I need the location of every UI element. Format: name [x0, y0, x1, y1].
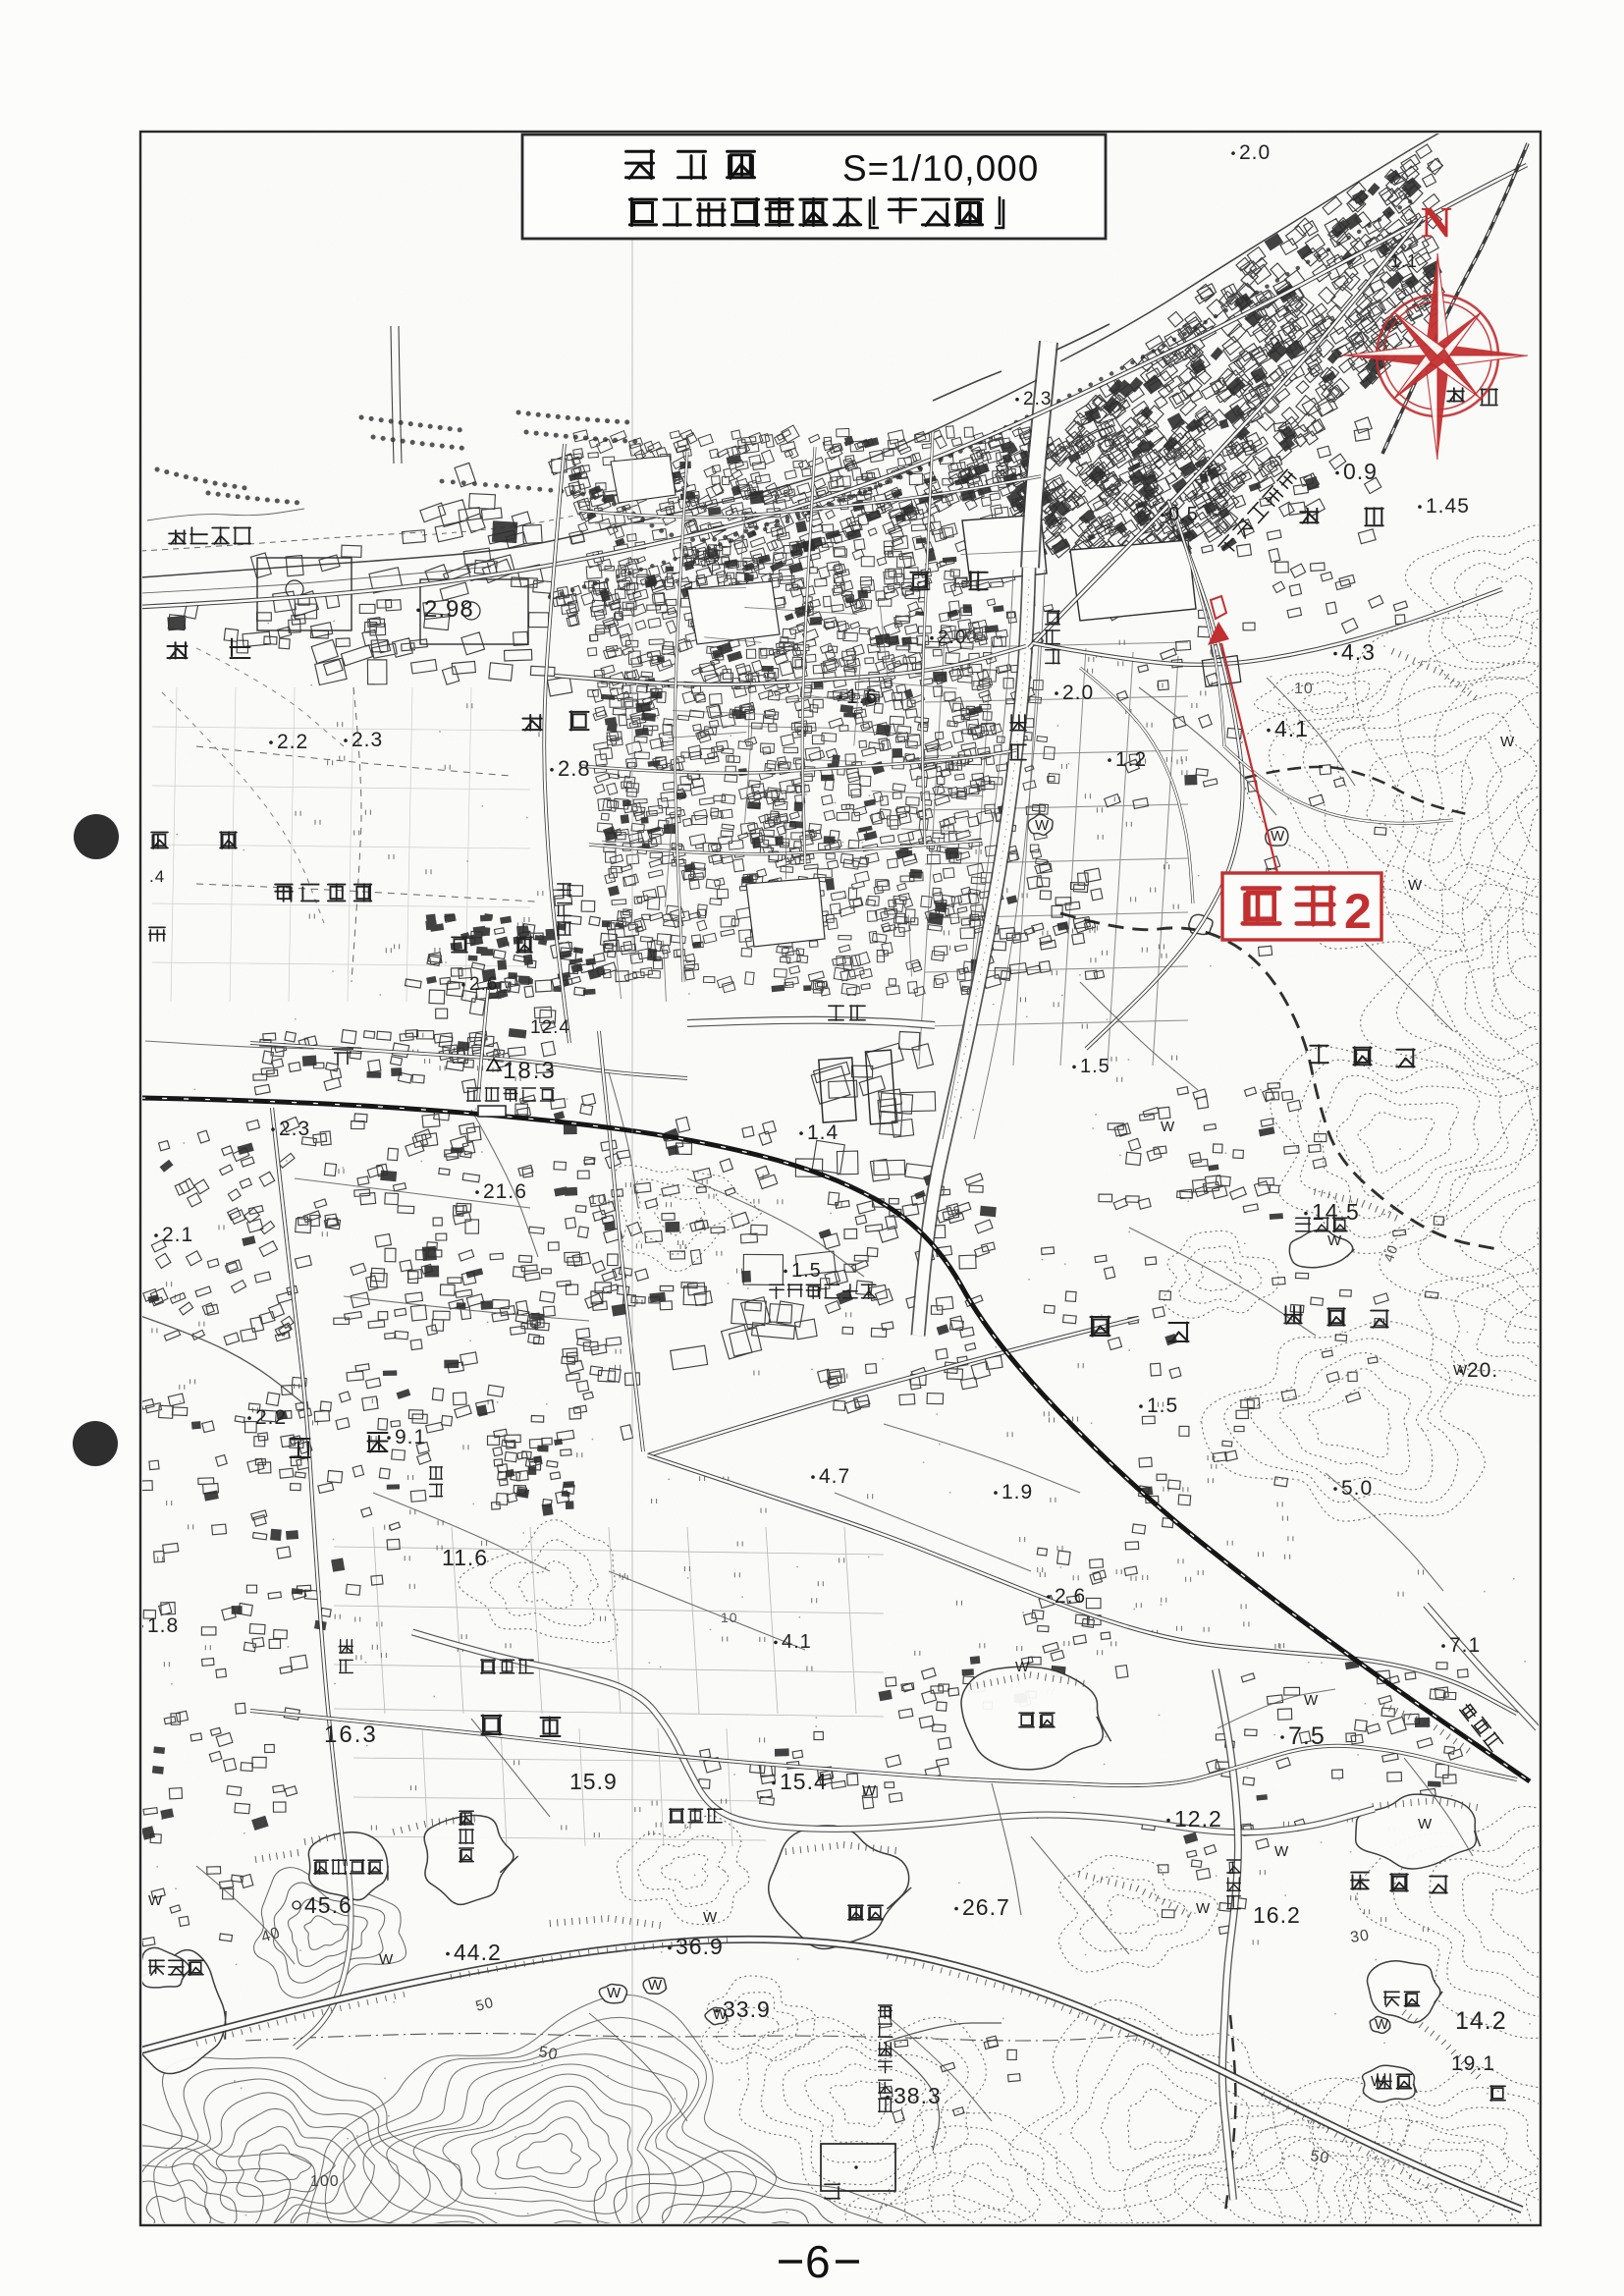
- svg-text:10: 10: [1294, 681, 1314, 697]
- svg-text:W: W: [1418, 1816, 1433, 1832]
- svg-text:1.5: 1.5: [1080, 1056, 1110, 1077]
- svg-text:W: W: [703, 1909, 718, 1926]
- svg-text:19.1: 19.1: [1451, 2052, 1495, 2075]
- svg-text:4.1: 4.1: [782, 1631, 812, 1653]
- svg-text:38.3: 38.3: [893, 2083, 942, 2108]
- svg-text:18.3: 18.3: [503, 1058, 557, 1084]
- svg-text:4.7: 4.7: [819, 1465, 850, 1488]
- svg-text:2: 2: [1344, 884, 1372, 939]
- svg-text:100: 100: [310, 2173, 340, 2190]
- svg-text:1.5: 1.5: [1147, 1394, 1178, 1417]
- svg-text:2.2: 2.2: [255, 1406, 287, 1429]
- svg-text:W: W: [1375, 2016, 1389, 2033]
- svg-text:16.3: 16.3: [324, 1722, 378, 1748]
- svg-text:W: W: [1161, 1119, 1175, 1135]
- svg-text:N: N: [1421, 198, 1452, 246]
- svg-text:2.6: 2.6: [1055, 1585, 1086, 1608]
- svg-text:W: W: [379, 1951, 394, 1968]
- svg-text:1.6: 1.6: [846, 685, 878, 708]
- svg-text:W: W: [1304, 1692, 1319, 1709]
- svg-text:12.4: 12.4: [530, 1017, 570, 1038]
- svg-text:44.2: 44.2: [454, 1940, 502, 1965]
- svg-text:S=1/10,000: S=1/10,000: [842, 148, 1039, 189]
- svg-text:2.3: 2.3: [1023, 389, 1052, 410]
- svg-text:2.0: 2.0: [1062, 682, 1094, 704]
- svg-text:11.6: 11.6: [442, 1545, 488, 1570]
- svg-text:12.2: 12.2: [1174, 1806, 1222, 1831]
- svg-text:W: W: [1327, 1232, 1342, 1249]
- svg-text:45.6: 45.6: [304, 1892, 352, 1918]
- svg-text:21.6: 21.6: [483, 1180, 527, 1203]
- svg-text:W: W: [1453, 1362, 1468, 1379]
- svg-text:36.9: 36.9: [676, 1934, 724, 1959]
- svg-text:1.4: 1.4: [807, 1121, 839, 1144]
- svg-text:2.98: 2.98: [424, 596, 474, 623]
- svg-text:5.0: 5.0: [1341, 1477, 1373, 1500]
- svg-text:2.1: 2.1: [162, 1224, 193, 1246]
- svg-text:1.5: 1.5: [791, 1260, 822, 1282]
- svg-text:2.2: 2.2: [277, 731, 308, 753]
- svg-text:W: W: [1500, 734, 1515, 750]
- svg-text:W: W: [1035, 817, 1050, 834]
- svg-text:W: W: [1408, 877, 1423, 894]
- svg-text:1.9: 1.9: [1001, 1481, 1033, 1503]
- svg-text:50: 50: [1309, 2148, 1330, 2167]
- svg-text:7.5: 7.5: [1288, 1722, 1326, 1750]
- svg-text:1.8: 1.8: [147, 1614, 179, 1637]
- svg-text:15.4: 15.4: [780, 1769, 828, 1794]
- svg-text:W: W: [607, 1985, 622, 2001]
- svg-text:50: 50: [537, 2044, 559, 2063]
- svg-text:20.: 20.: [1467, 1359, 1498, 1382]
- svg-text:W: W: [862, 1782, 877, 1799]
- svg-text:10: 10: [721, 1610, 738, 1625]
- svg-text:10: 10: [589, 1191, 607, 1207]
- svg-text:0.5: 0.5: [1168, 504, 1199, 525]
- svg-text:4.3: 4.3: [1341, 639, 1376, 665]
- svg-text:26.7: 26.7: [962, 1894, 1010, 1920]
- svg-text:W: W: [1271, 828, 1285, 845]
- svg-text:9.1: 9.1: [395, 1426, 426, 1449]
- svg-text:4.1: 4.1: [1274, 716, 1309, 741]
- svg-text:W: W: [1274, 1843, 1289, 1860]
- svg-text:W: W: [1371, 2073, 1385, 2090]
- svg-text:14.2: 14.2: [1455, 2007, 1507, 2035]
- svg-text:2.8: 2.8: [558, 756, 591, 781]
- svg-text:W: W: [1196, 1900, 1211, 1917]
- svg-text:W: W: [648, 1977, 663, 1994]
- svg-text:1.45: 1.45: [1426, 495, 1470, 518]
- svg-text:W: W: [713, 2006, 728, 2023]
- svg-text:0.9: 0.9: [1343, 459, 1378, 484]
- svg-text:2.3: 2.3: [279, 1118, 310, 1140]
- svg-text:33.9: 33.9: [723, 1996, 771, 2022]
- svg-text:1.2: 1.2: [1115, 748, 1147, 771]
- svg-text:1.1: 1.1: [1390, 251, 1418, 271]
- svg-text:2.0: 2.0: [1239, 141, 1271, 164]
- svg-text:.4: .4: [149, 867, 165, 886]
- svg-text:15.9: 15.9: [569, 1769, 618, 1794]
- svg-text:7.1: 7.1: [1449, 1634, 1481, 1657]
- svg-text:W: W: [1015, 1659, 1030, 1675]
- svg-text:30: 30: [1349, 1927, 1371, 1946]
- svg-text:2.6: 2.6: [469, 974, 498, 995]
- svg-text:6: 6: [805, 2236, 831, 2287]
- svg-text:2.0: 2.0: [938, 628, 966, 648]
- svg-text:16.2: 16.2: [1253, 1902, 1301, 1928]
- svg-text:W: W: [148, 1892, 163, 1909]
- svg-text:2.3: 2.3: [352, 729, 383, 751]
